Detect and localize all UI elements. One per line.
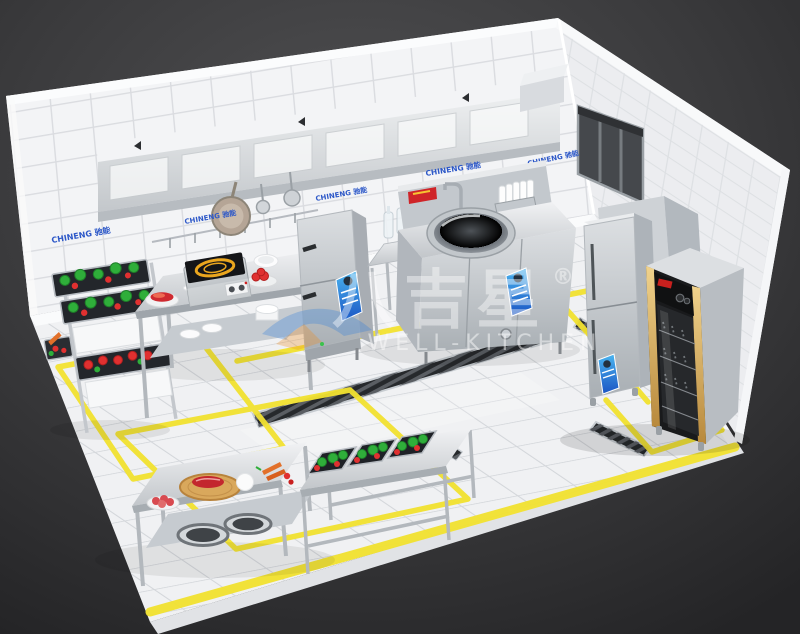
watermark-registered-mark: ® bbox=[552, 265, 574, 290]
dough-ball bbox=[237, 474, 254, 491]
door-handle bbox=[592, 244, 594, 300]
indicator-light bbox=[320, 342, 324, 346]
raw-meat bbox=[192, 476, 224, 488]
upright-fridge bbox=[584, 213, 658, 406]
disinfection-cabinet bbox=[646, 248, 744, 451]
kitchen-scene: CHINENG 驰能 CHINENG 驰能 CHINENG 驰能 CHINENG… bbox=[0, 0, 800, 634]
watermark-brand-en: WELL-KITCHEN bbox=[367, 331, 602, 356]
glass-door bbox=[657, 304, 699, 436]
cutting-board bbox=[180, 474, 240, 500]
white-bowl bbox=[254, 255, 278, 268]
watermark-brand-cn: 八吉星 bbox=[332, 264, 548, 338]
kitchen-3d-render: CHINENG 驰能 CHINENG 驰能 CHINENG 驰能 CHINENG… bbox=[0, 0, 800, 634]
wok-bowl bbox=[427, 208, 515, 258]
